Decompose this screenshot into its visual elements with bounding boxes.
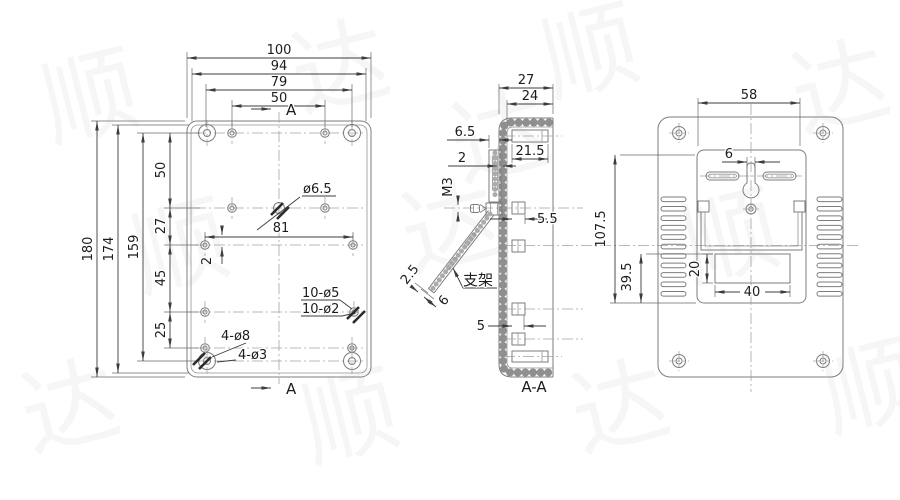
bracket-tip-dimensions: 2.5 6	[398, 262, 453, 309]
label-bracket: 支架	[463, 271, 493, 289]
dim-label-174: 174	[102, 237, 117, 262]
dim-label-39.5: 39.5	[620, 263, 635, 292]
dim-label-5.5: 5.5	[537, 212, 558, 227]
section-mark-a-top: A	[286, 101, 297, 119]
vent-slot	[661, 225, 686, 230]
back-view: 58 6 107.5 39.5 20 40	[594, 88, 843, 392]
dim-label-94: 94	[271, 59, 288, 74]
vent-slot	[661, 263, 686, 268]
callout-4-d8: 4-ø8	[221, 329, 250, 344]
dim-label-2.5: 2.5	[398, 262, 423, 288]
dim-label-159: 159	[127, 235, 142, 260]
front-left-dimensions: 180 174 159 50 27 45 25	[81, 121, 200, 377]
section-mark-a-bottom: A	[286, 380, 297, 398]
callout-center-hole: ø6.5	[303, 182, 332, 197]
dim-label-79: 79	[271, 75, 288, 90]
section-hatch	[503, 123, 549, 373]
dim-label-180: 180	[81, 237, 96, 262]
dim-label-50-left: 50	[154, 162, 169, 179]
dim-label-5: 5	[477, 319, 485, 334]
dim-label-25-left: 25	[154, 322, 169, 339]
callout-10-d2: 10-ø2	[302, 302, 339, 317]
vent-slot	[817, 254, 842, 259]
dim-label-6-tip: 6	[436, 293, 453, 309]
callout-4-d3: 4-ø3	[238, 348, 267, 363]
vent-slot	[661, 273, 686, 278]
vent-slot	[817, 197, 842, 202]
front-inner-dimensions: 81 2	[200, 221, 353, 265]
vent-slot	[817, 273, 842, 278]
dim-label-21.5: 21.5	[516, 144, 545, 159]
dim-label-27-left: 27	[154, 218, 169, 235]
back-opening	[715, 254, 790, 283]
technical-drawing-canvas: 顺达顺达顺达顺达顺达顺达	[0, 0, 900, 500]
dim-label-58: 58	[741, 88, 758, 103]
dim-label-50-top: 50	[271, 91, 288, 106]
dim-label-2-wall: 2	[458, 151, 466, 166]
vent-slot	[817, 244, 842, 249]
dim-label-24: 24	[522, 89, 539, 104]
vent-slot	[817, 225, 842, 230]
section-view-label: A-A	[521, 378, 547, 396]
dim-label-m3: M3	[441, 177, 456, 197]
vent-slots	[661, 197, 842, 296]
vent-slot	[817, 206, 842, 211]
vent-slot	[661, 235, 686, 240]
m3-screw	[471, 205, 487, 213]
dim-label-6.5: 6.5	[455, 125, 476, 140]
bracket-callout: 支架	[453, 268, 497, 289]
dim-label-20: 20	[688, 261, 703, 278]
dim-label-81: 81	[273, 221, 290, 236]
vent-slot	[661, 254, 686, 259]
vent-slot	[661, 282, 686, 287]
dim-label-6-slot: 6	[725, 147, 733, 162]
dim-label-40: 40	[744, 285, 761, 300]
vent-slot	[817, 235, 842, 240]
drawing-svg: 100 94 79 50 A A	[0, 0, 900, 500]
dim-label-45-left: 45	[154, 270, 169, 287]
stand-bracket-outline	[698, 201, 805, 250]
front-view: 100 94 79 50 A A	[81, 43, 371, 398]
vent-slot	[817, 282, 842, 287]
dim-label-2-offset: 2	[200, 257, 215, 265]
vent-slot	[661, 216, 686, 221]
section-bosses	[512, 202, 525, 345]
vent-slot	[817, 216, 842, 221]
dim-label-100: 100	[267, 43, 292, 58]
dim-label-27: 27	[518, 73, 535, 88]
vent-slot	[817, 263, 842, 268]
section-wall-inner	[507, 127, 553, 368]
dim-label-107.5: 107.5	[594, 210, 609, 247]
vent-slot	[817, 292, 842, 297]
callout-10-d5: 10-ø5	[302, 286, 339, 301]
vent-slot	[661, 244, 686, 249]
vent-slot	[661, 197, 686, 202]
wall-boss	[512, 240, 525, 252]
vent-slot	[661, 206, 686, 211]
section-view: M3 2.5 6 支架	[398, 73, 858, 396]
vent-slot	[661, 292, 686, 297]
folded-bracket-strip	[486, 150, 502, 215]
